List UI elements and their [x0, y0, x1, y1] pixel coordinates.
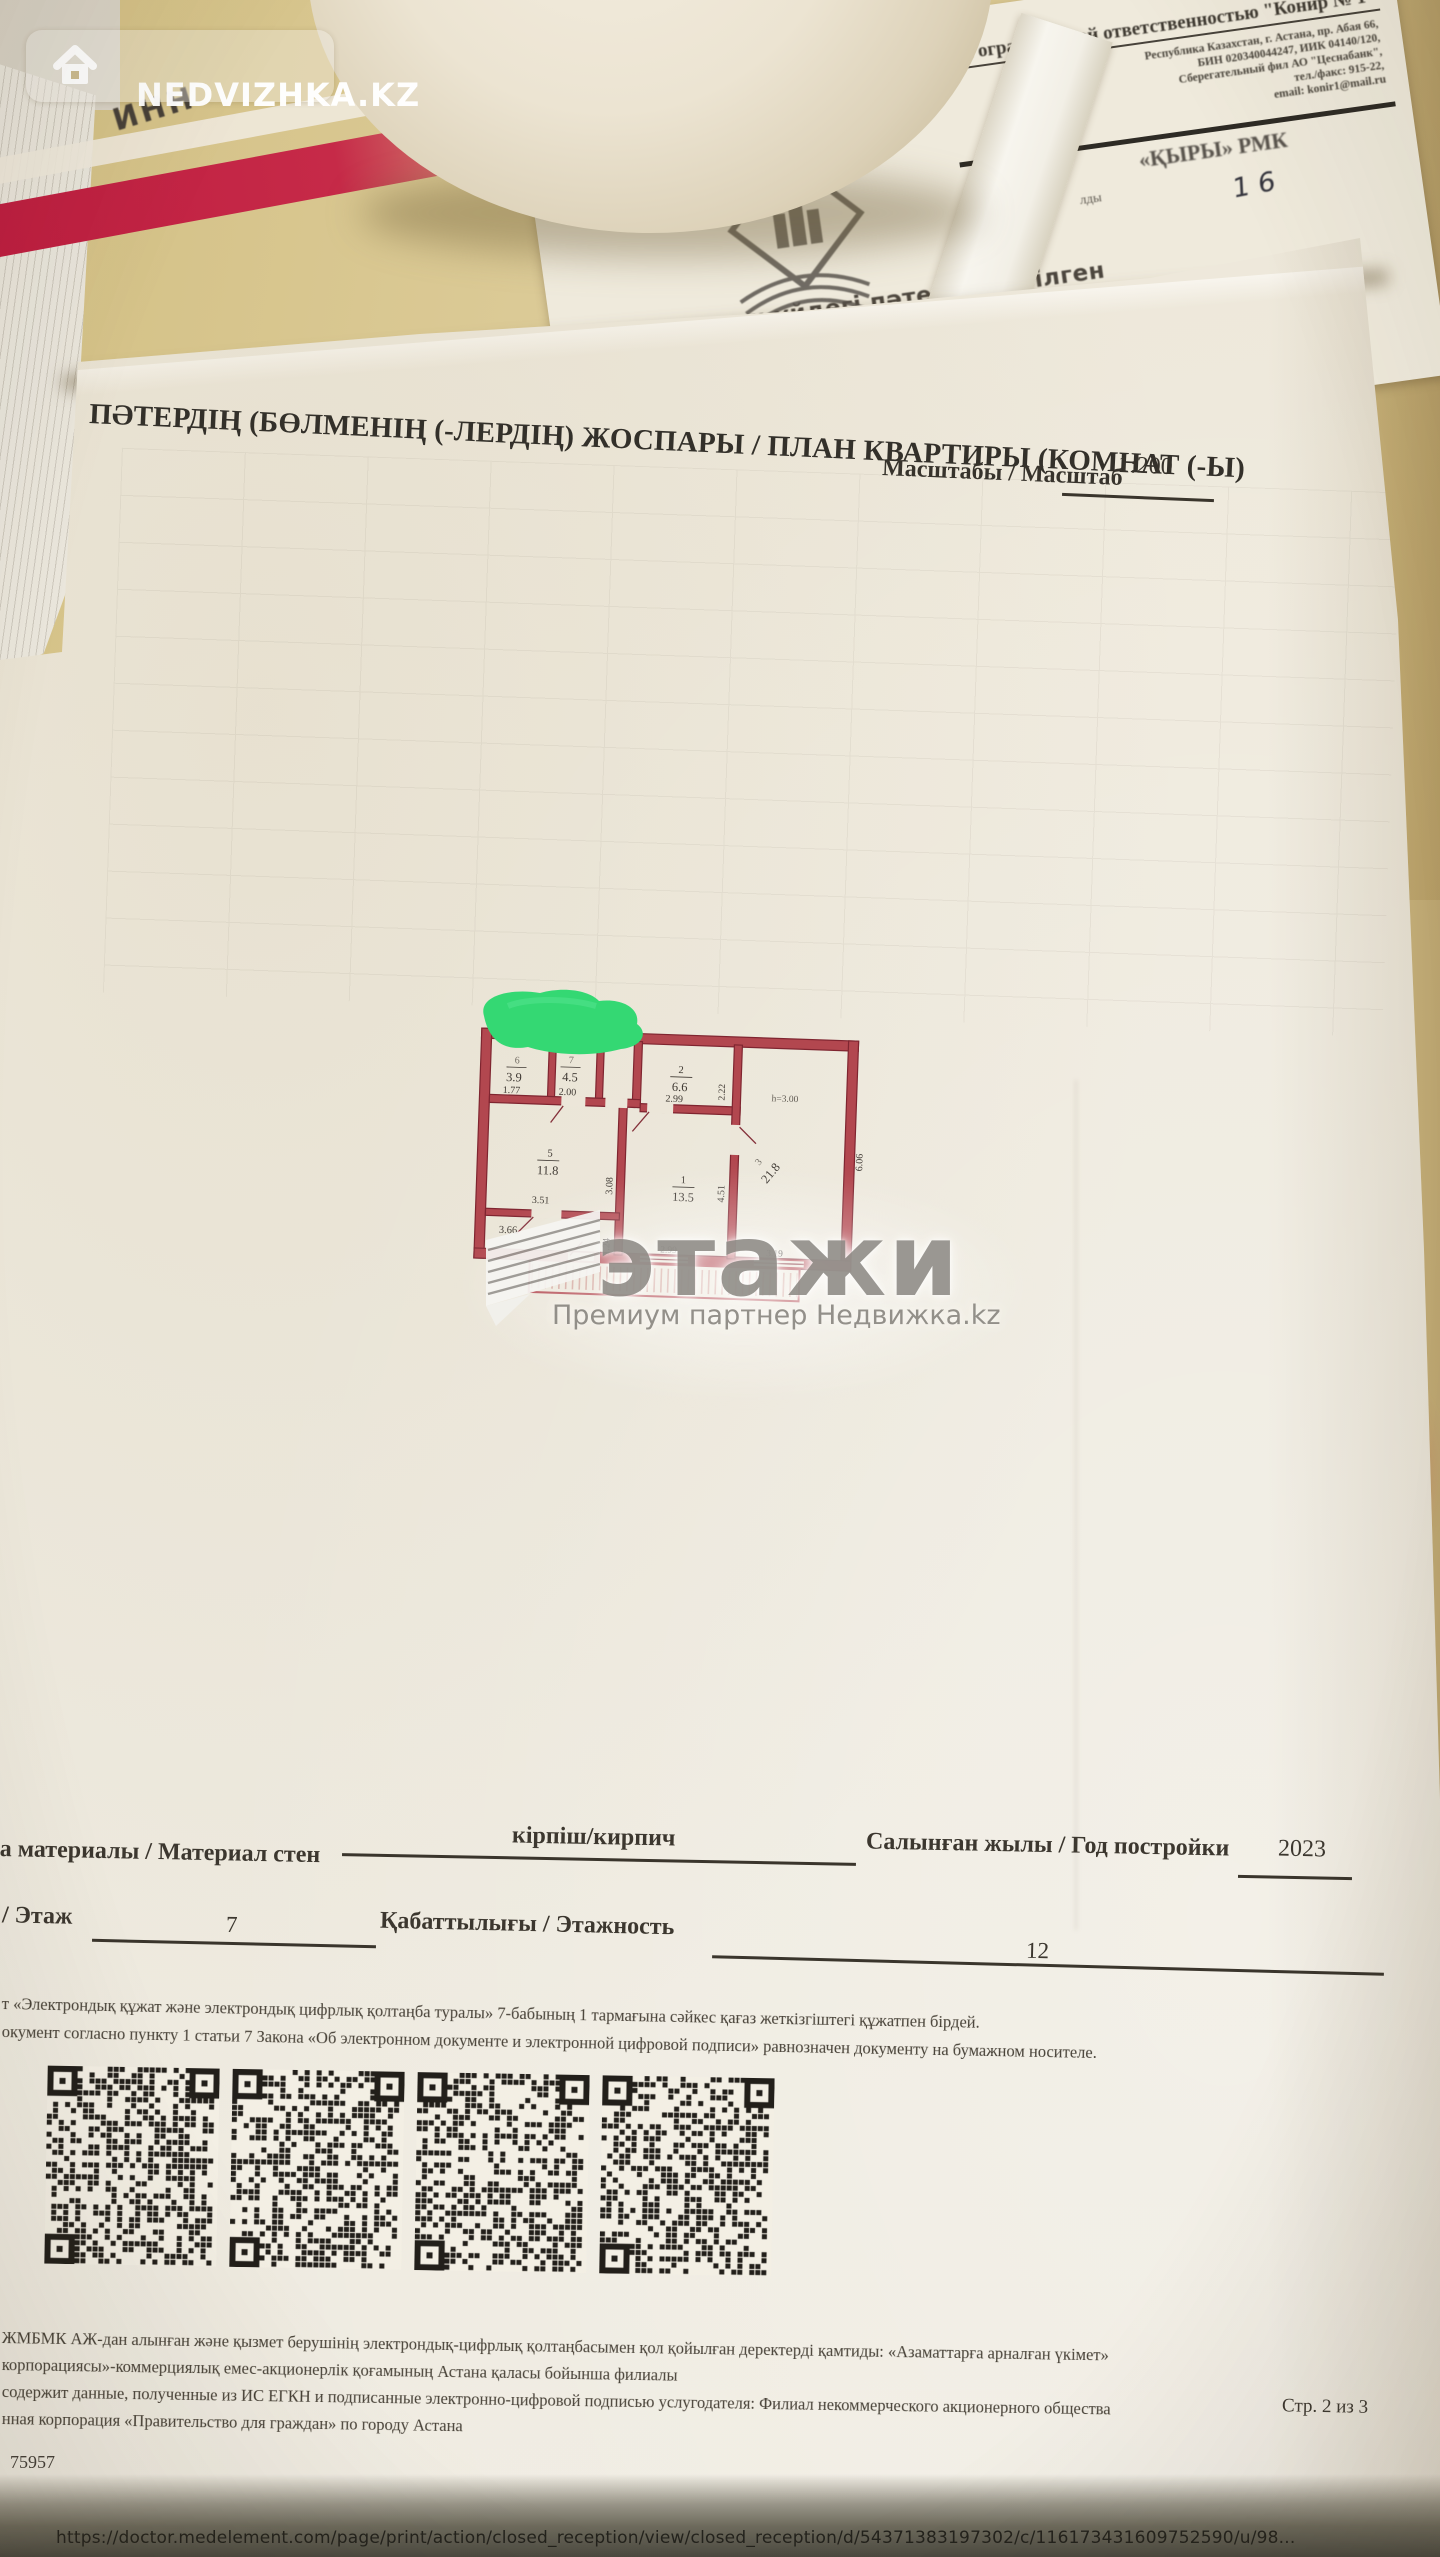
qr-code-row: [44, 2066, 774, 2277]
nedvizhka-badge: NEDVIZHKA.KZ: [26, 30, 334, 102]
room-area: 4.5: [562, 1070, 578, 1085]
room-number: 2: [678, 1065, 684, 1076]
qr-code: [44, 2066, 219, 2267]
qr-code: [414, 2072, 589, 2273]
faint-table-grid: [103, 448, 1401, 1037]
room-area: 3.9: [506, 1070, 522, 1085]
room-number: 5: [547, 1148, 553, 1159]
page-number: Стр. 2 из 3: [1282, 2395, 1369, 2419]
ceiling-height: h=3.00: [771, 1094, 798, 1105]
materials-value: кірпіш/кирпич: [512, 1822, 676, 1852]
qr-code: [599, 2075, 774, 2276]
room-area: 11.8: [537, 1163, 559, 1178]
source-url: https://doctor.medelement.com/page/print…: [56, 2528, 1296, 2548]
room-area: 6.6: [672, 1080, 688, 1095]
listing-photo: ИНН Товарищество с ограниченной ответств…: [0, 0, 1440, 2557]
dim: 6.06: [854, 1154, 866, 1172]
floor-value: 7: [226, 1912, 238, 1938]
handwritten-number: 1 6: [1232, 166, 1276, 205]
document-number: 75957: [10, 2452, 55, 2473]
dim: 1.77: [503, 1085, 521, 1097]
nedvizhka-brand: NEDVIZHKA.KZ: [136, 76, 420, 114]
room-number: 3: [753, 1157, 765, 1168]
qr-code: [229, 2069, 404, 2270]
dim: 2.99: [665, 1094, 683, 1106]
dim: 2.22: [717, 1083, 728, 1100]
floors-value: 12: [1026, 1938, 1050, 1965]
year-value: 2023: [1278, 1836, 1327, 1864]
dim: 2.00: [558, 1087, 576, 1099]
green-marker-blob: [468, 984, 658, 1066]
etazhi-partner-text: Премиум партнер Недвижка.kz: [552, 1300, 1001, 1331]
scale-value: 1:200: [1117, 452, 1173, 481]
page-fold: [1075, 1080, 1077, 1930]
floor-label: / Этаж: [2, 1902, 73, 1930]
house-icon: [50, 42, 100, 90]
letterhead-fragment-ldy: лды: [1079, 189, 1103, 208]
